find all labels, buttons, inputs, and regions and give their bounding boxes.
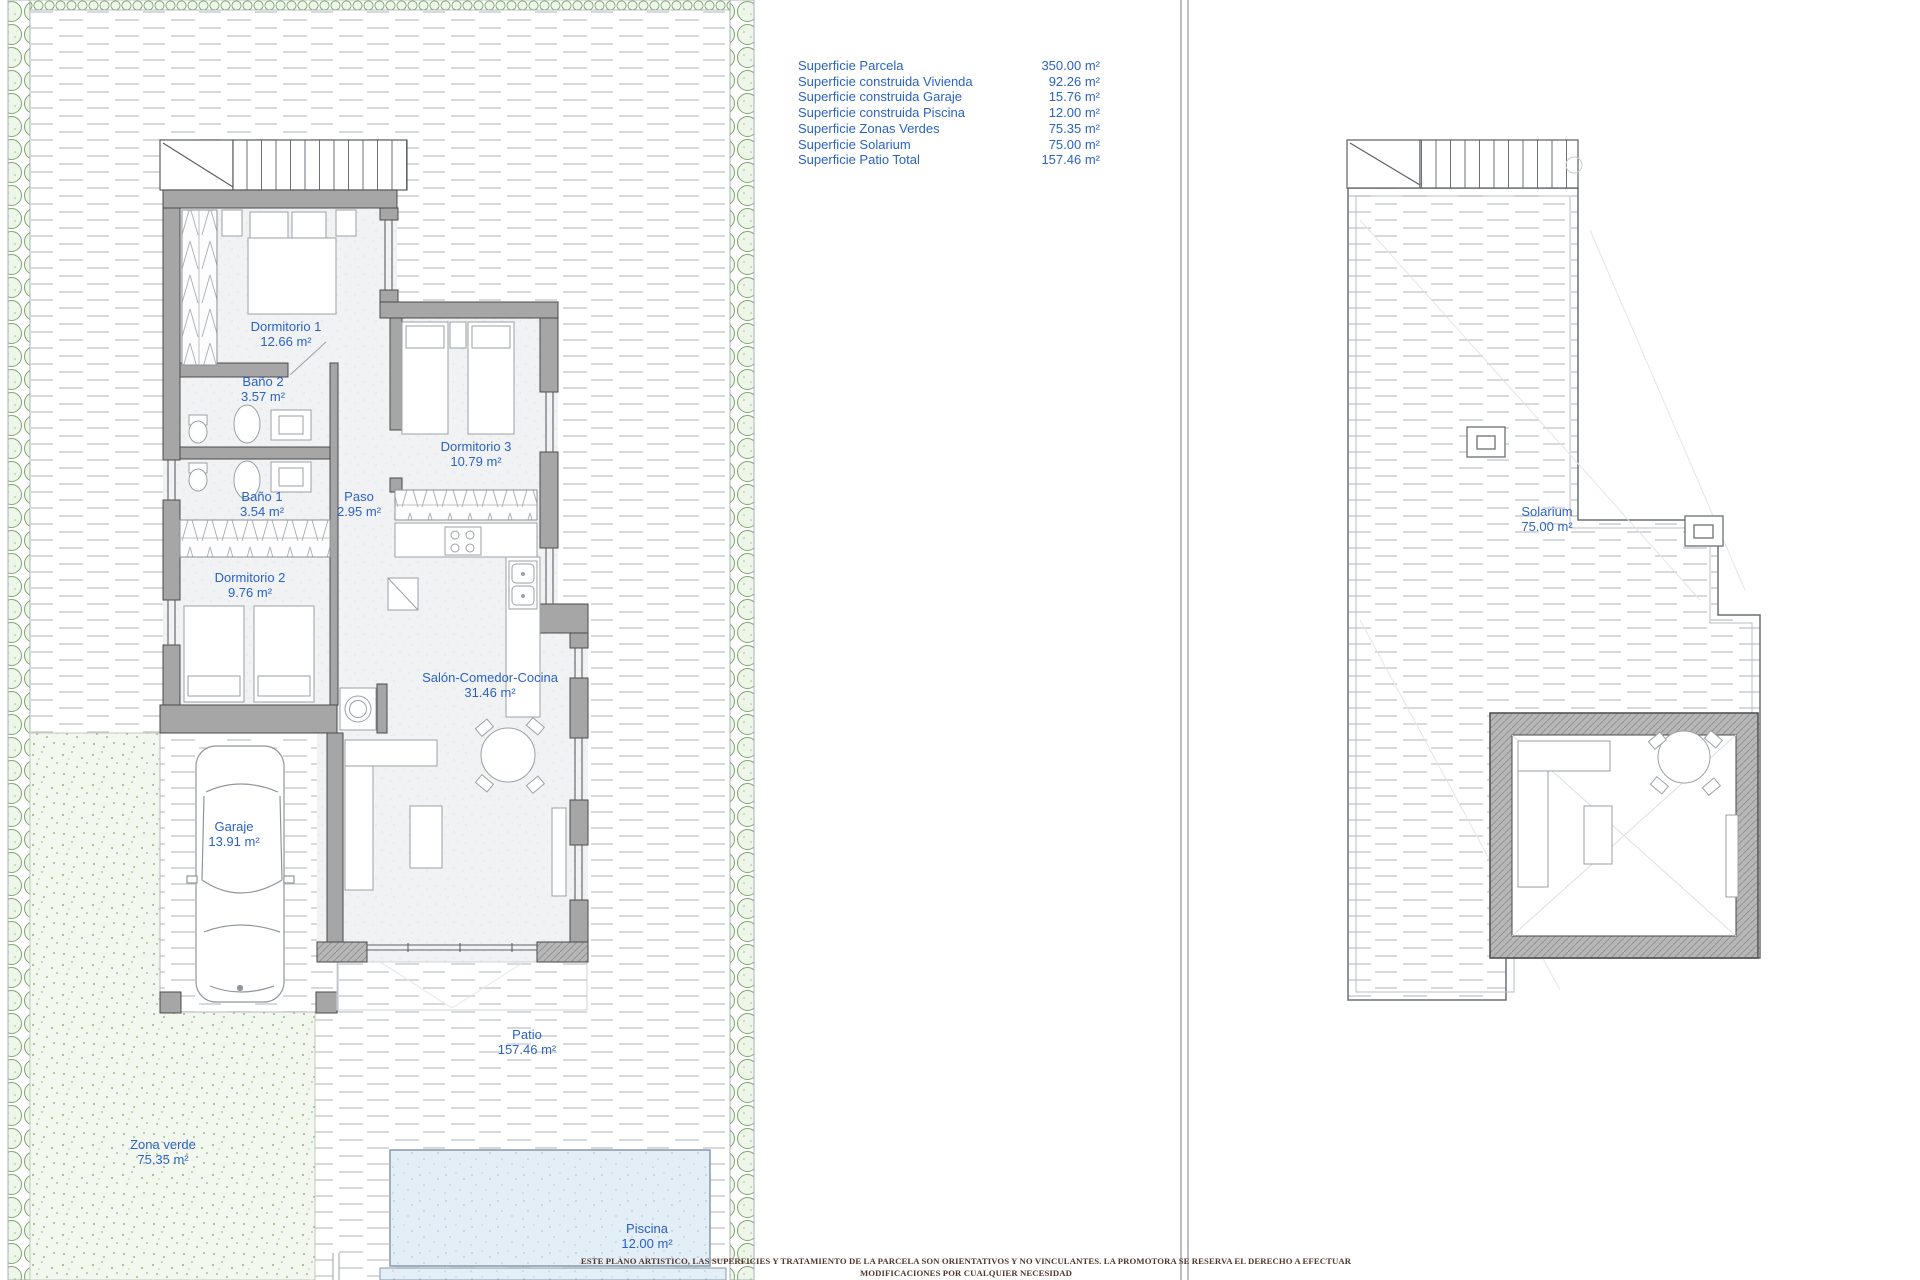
room-label-zonaverde: Zona verde75.35 m² — [130, 1138, 196, 1167]
summary-value: 12.00 m² — [1049, 105, 1100, 121]
summary-value: 75.35 m² — [1049, 121, 1100, 137]
room-label-bano1: Baño 13.54 m² — [240, 490, 284, 519]
room-label-salon: Salón-Comedor-Cocina31.46 m² — [422, 671, 558, 700]
solarium-plan — [1347, 140, 1760, 1000]
room-label-bano2: Baño 23.57 m² — [241, 375, 285, 404]
summary-row: Superficie construida Piscina12.00 m² — [798, 105, 1100, 121]
floorplan-page: Superficie Parcela350.00 m² Superficie c… — [0, 0, 1920, 1280]
disclaimer: ESTE PLANO ARTISTICO, LAS SUPERFICIES Y … — [566, 1256, 1366, 1280]
room-label-solarium: Solarium75.00 m² — [1521, 505, 1572, 534]
hedge-right — [730, 0, 754, 1280]
carport-post — [160, 992, 181, 1013]
summary-value: 92.26 m² — [1049, 74, 1100, 90]
surface-summary-table: Superficie Parcela350.00 m² Superficie c… — [798, 58, 1100, 168]
staircase-main — [160, 140, 407, 190]
floorplan-drawing — [0, 0, 1920, 1280]
panel-divider — [1181, 0, 1188, 1280]
summary-value: 157.46 m² — [1041, 152, 1100, 168]
summary-label: Superficie Parcela — [798, 58, 904, 74]
summary-label: Superficie construida Garaje — [798, 89, 962, 105]
summary-row: Superficie construida Vivienda92.26 m² — [798, 74, 1100, 90]
summary-value: 350.00 m² — [1041, 58, 1100, 74]
carport-post — [316, 992, 337, 1013]
room-label-garaje: Garaje13.91 m² — [208, 820, 259, 849]
summary-row: Superficie construida Garaje15.76 m² — [798, 89, 1100, 105]
staircase-solarium — [1347, 140, 1582, 188]
summary-label: Superficie Zonas Verdes — [798, 121, 940, 137]
room-label-patio: Patio157.46 m² — [498, 1028, 557, 1057]
hedge-top — [30, 0, 730, 10]
summary-label: Superficie Patio Total — [798, 152, 920, 168]
summary-label: Superficie Solarium — [798, 137, 911, 153]
disclaimer-es: ESTE PLANO ARTISTICO, LAS SUPERFICIES Y … — [566, 1256, 1366, 1279]
summary-row: Superficie Patio Total157.46 m² — [798, 152, 1100, 168]
room-label-dormitorio3: Dormitorio 310.79 m² — [441, 440, 512, 469]
room-label-dormitorio2: Dormitorio 29.76 m² — [215, 571, 286, 600]
room-label-piscina: Piscina12.00 m² — [621, 1222, 672, 1251]
car — [187, 746, 294, 1002]
room-label-dormitorio1: Dormitorio 112.66 m² — [251, 320, 322, 349]
summary-value: 75.00 m² — [1049, 137, 1100, 153]
summary-row: Superficie Zonas Verdes75.35 m² — [798, 121, 1100, 137]
summary-row: Superficie Solarium75.00 m² — [798, 137, 1100, 153]
room-label-paso: Paso2.95 m² — [337, 490, 381, 519]
hedge-left — [8, 0, 30, 1280]
summary-label: Superficie construida Vivienda — [798, 74, 973, 90]
summary-row: Superficie Parcela350.00 m² — [798, 58, 1100, 74]
summary-value: 15.76 m² — [1049, 89, 1100, 105]
summary-label: Superficie construida Piscina — [798, 105, 965, 121]
solarium-room — [1490, 713, 1758, 958]
plot-plan — [8, 0, 754, 1280]
